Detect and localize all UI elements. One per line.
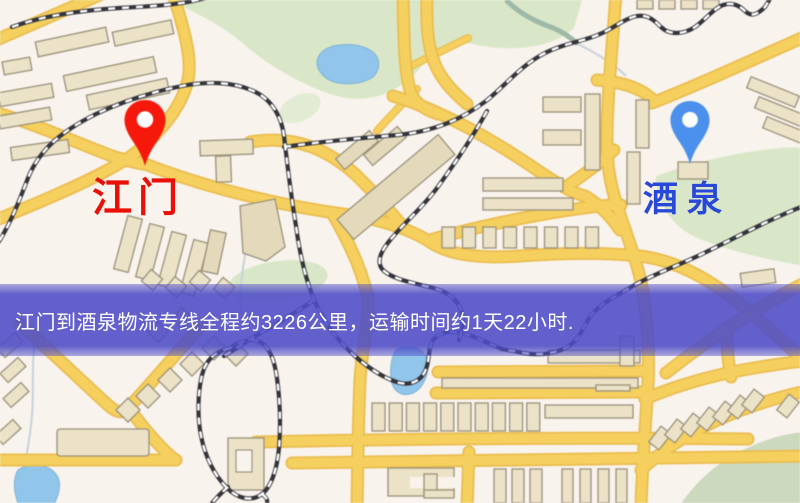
map-artwork: [0, 0, 800, 503]
map-canvas: 江门 酒泉 江门到酒泉物流专线全程约3226公里，运输时间约1天22小时.: [0, 0, 800, 503]
map-pin-icon: [123, 99, 167, 169]
origin-label: 江门: [63, 178, 213, 218]
route-info-text: 江门到酒泉物流专线全程约3226公里，运输时间约1天22小时.: [0, 306, 574, 335]
route-info-banner: 江门到酒泉物流专线全程约3226公里，运输时间约1天22小时.: [0, 284, 800, 356]
destination-label: 酒泉: [612, 182, 762, 217]
map-pin-icon: [669, 100, 711, 167]
